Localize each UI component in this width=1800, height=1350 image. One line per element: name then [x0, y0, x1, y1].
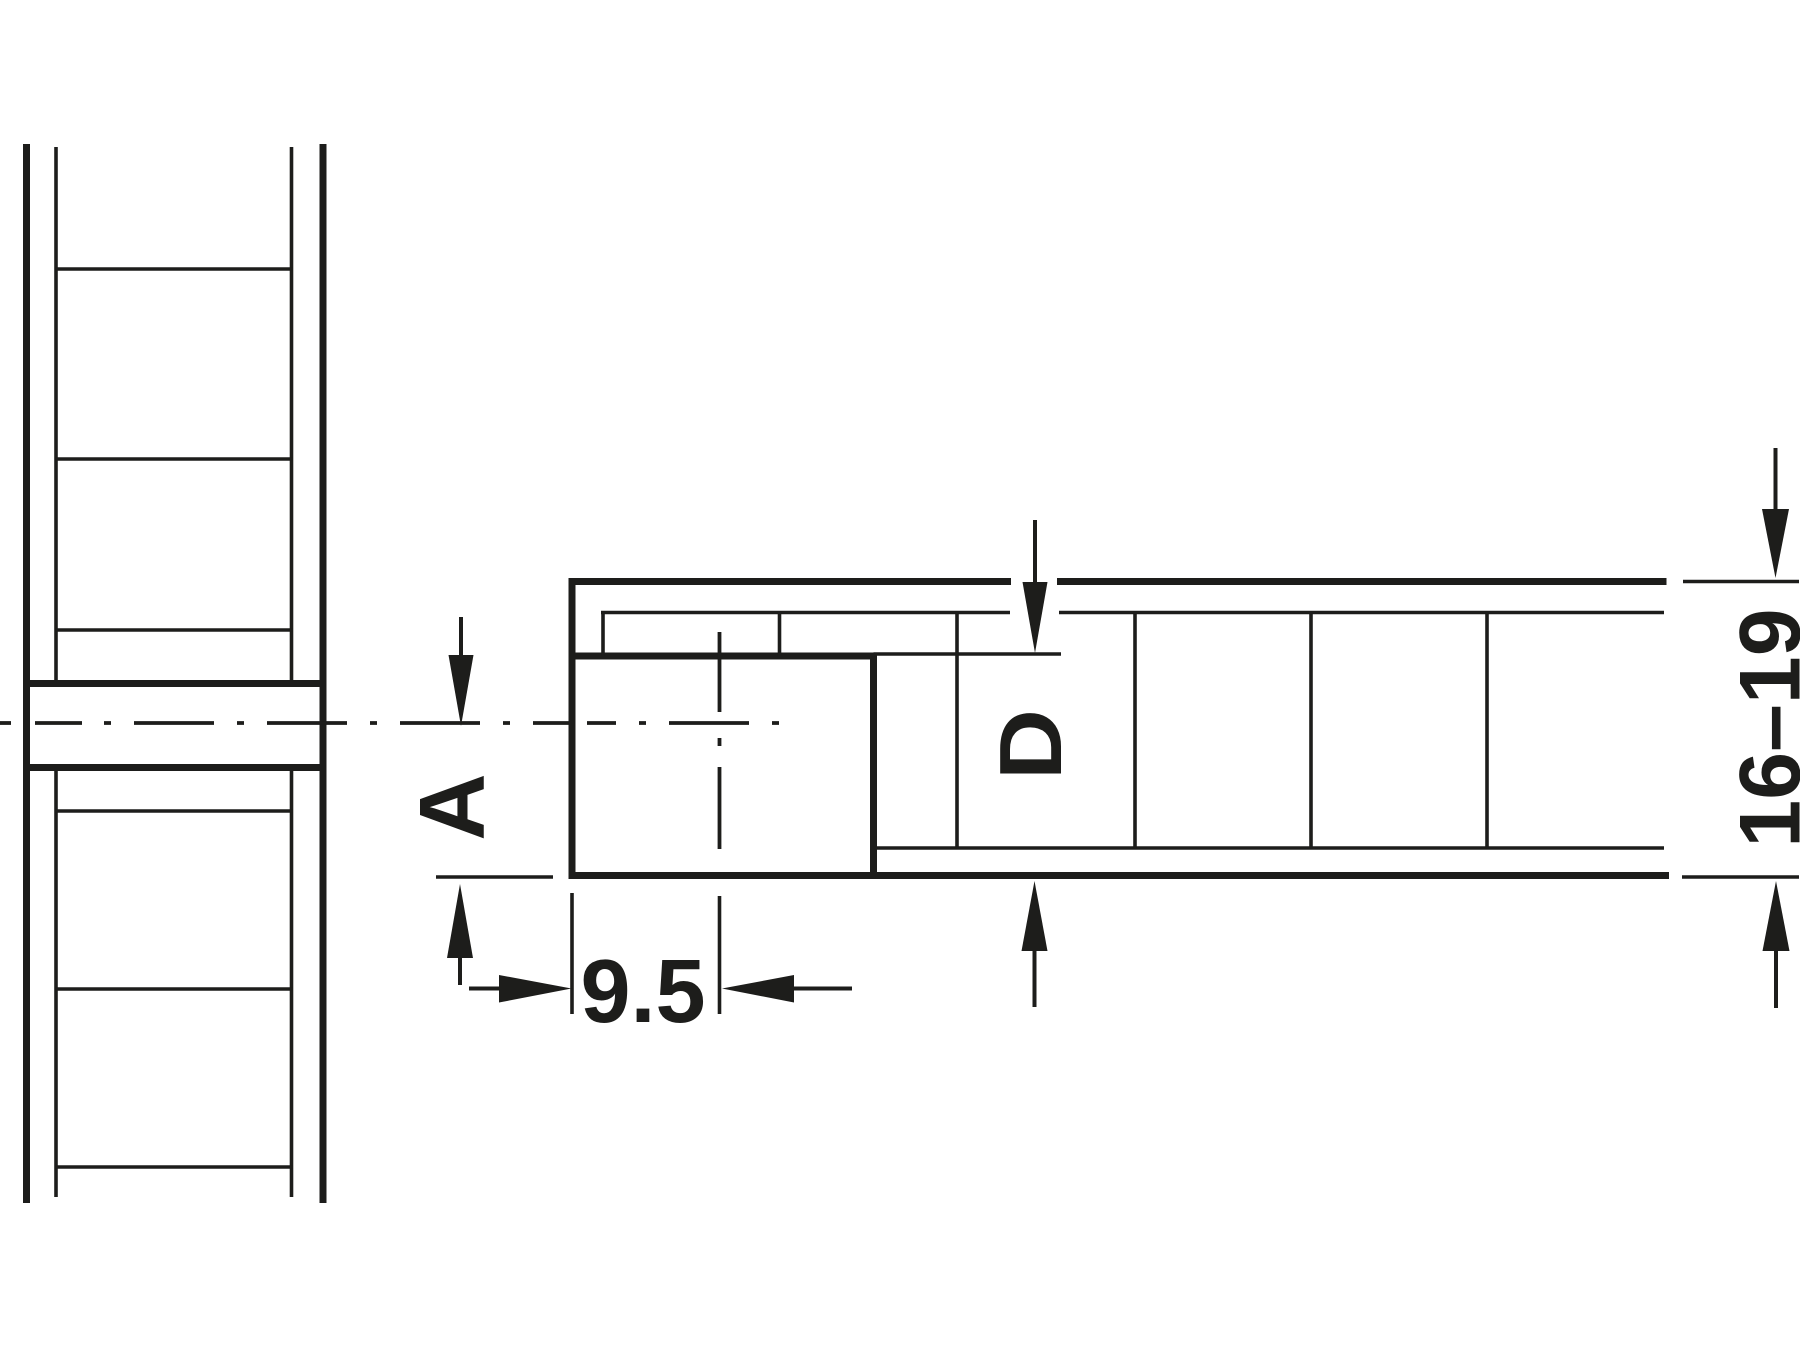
svg-text:A: A [400, 773, 504, 840]
svg-text:9.5: 9.5 [580, 942, 705, 1042]
svg-text:D: D [981, 709, 1080, 780]
svg-text:16–19: 16–19 [1723, 608, 1800, 847]
